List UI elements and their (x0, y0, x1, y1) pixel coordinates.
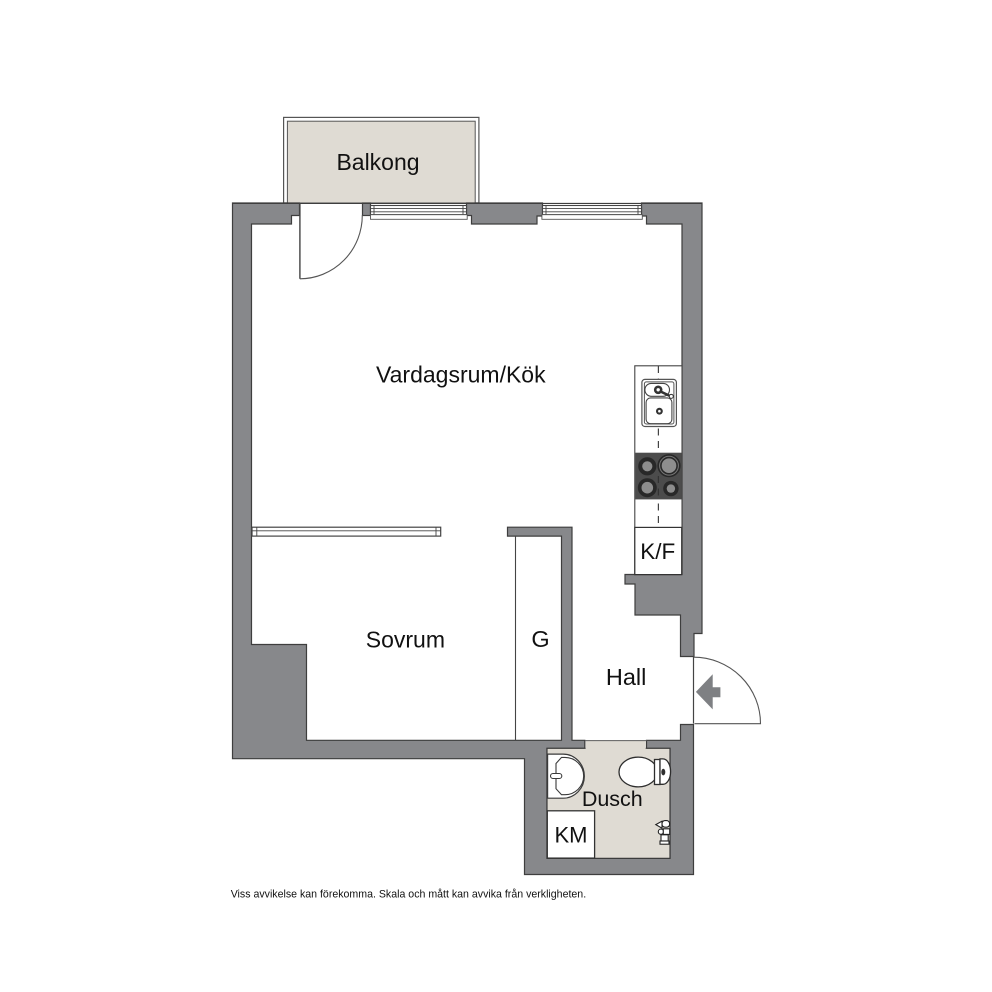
svg-text:Viss avvikelse kan förekomma.: Viss avvikelse kan förekomma. Skala och … (231, 889, 586, 901)
svg-text:Balkong: Balkong (336, 149, 419, 175)
svg-text:G: G (531, 626, 549, 652)
svg-text:Sovrum: Sovrum (366, 626, 445, 652)
svg-text:K/F: K/F (640, 539, 675, 564)
svg-text:Dusch: Dusch (582, 787, 643, 811)
svg-text:KM: KM (555, 823, 588, 848)
svg-text:Vardagsrum/Kök: Vardagsrum/Kök (376, 361, 546, 387)
svg-text:Hall: Hall (606, 664, 646, 690)
